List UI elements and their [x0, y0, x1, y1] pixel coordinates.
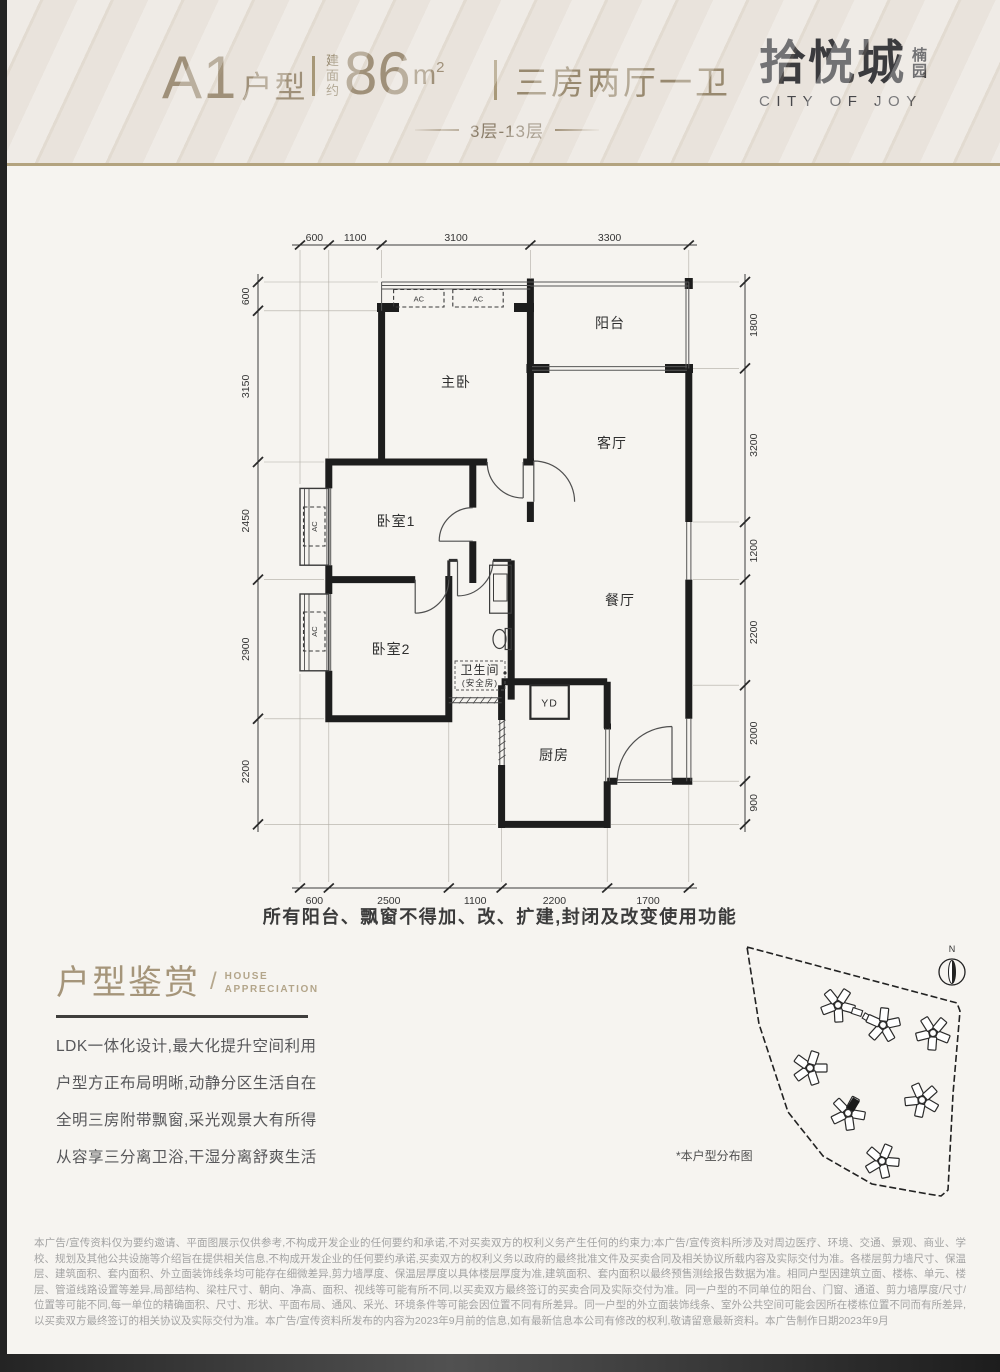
- dim-left-2450: 2450: [240, 509, 252, 533]
- area-unit-sup: 2: [436, 59, 444, 76]
- dim-top-1100: 1100: [344, 232, 367, 244]
- appreciation-divider: [56, 1015, 308, 1018]
- appreciation-en-line1: HOUSE: [225, 970, 319, 983]
- compass-north-label: N: [949, 944, 956, 954]
- dim-top-3100: 3100: [444, 232, 468, 244]
- siteplan-caption: *本户型分布图: [676, 1148, 753, 1163]
- brand-sub-name: 楠园: [911, 47, 931, 81]
- dim-left-2900: 2900: [240, 637, 252, 661]
- floors-range: 3层-13层: [470, 117, 544, 142]
- area-unit-base: m: [413, 59, 436, 90]
- dim-left-2200: 2200: [240, 760, 252, 784]
- ac-label-bay2: AC: [310, 626, 319, 637]
- room-label-yd: YD: [541, 698, 558, 710]
- area-prefix: 建面约: [326, 53, 341, 98]
- bed2-door: [415, 580, 449, 614]
- ac-label-2: AC: [473, 295, 484, 304]
- page-left-edge: [0, 0, 7, 1372]
- room-label-bed2: 卧室2: [372, 641, 411, 657]
- dim-top-600: 600: [306, 232, 324, 244]
- hatch-windows: [449, 697, 506, 765]
- brand-logo: 拾悦城 楠园 CITY OF JOY: [759, 38, 931, 110]
- header-divider-2: [494, 60, 497, 100]
- appreciation-en-line2: APPRECIATION: [225, 983, 319, 996]
- page-bottom-bar: [0, 1354, 1000, 1372]
- room-label-bath-sub: (安全房): [462, 678, 498, 688]
- dim-right-2000: 2000: [748, 721, 760, 745]
- header-divider-1: [312, 56, 315, 96]
- unit-title: A1 户型: [162, 48, 307, 108]
- dim-right-900: 900: [748, 794, 760, 812]
- appreciation-title: 户型鉴赏: [56, 964, 200, 1002]
- dim-right-1800: 1800: [748, 313, 760, 337]
- dim-top-3300: 3300: [598, 232, 622, 244]
- unit-code: A1: [162, 48, 237, 108]
- dim-left-600: 600: [240, 287, 252, 305]
- walls: [325, 279, 692, 829]
- dim-right-3200: 3200: [748, 433, 760, 457]
- plan-note: 所有阳台、飘窗不得加、改、扩建,封闭及改变使用功能: [220, 903, 780, 929]
- site-boundary: [747, 947, 960, 1196]
- area-unit: m2: [413, 59, 445, 91]
- unit-label: 户型: [241, 62, 307, 107]
- brand-name-en: CITY OF JOY: [759, 93, 931, 110]
- toilet: [493, 630, 506, 649]
- site-buildings: [794, 984, 955, 1180]
- room-label-dining: 餐厅: [605, 592, 635, 608]
- appreciation-paragraph: LDK一体化设计,最大化提升空间利用: [56, 1039, 346, 1055]
- wall-blocks: [377, 278, 693, 730]
- header: A1 户型 建面约 86 m2 三房两厅一卫 3层-13层 拾悦城 楠园 CIT…: [7, 0, 1000, 164]
- ac-label-1: AC: [414, 295, 425, 304]
- floors-dash-left: [415, 129, 459, 131]
- appreciation-title-en: HOUSE APPRECIATION: [225, 970, 319, 996]
- appreciation-section: 户型鉴赏 / HOUSE APPRECIATION LDK一体化设计,最大化提升…: [56, 964, 346, 1166]
- flyer-page: A1 户型 建面约 86 m2 三房两厅一卫 3层-13层 拾悦城 楠园 CIT…: [0, 0, 1000, 1372]
- master-door: [487, 462, 523, 498]
- site-plan: N *本户型分布图: [660, 932, 980, 1220]
- ac-label-bay1: AC: [310, 521, 319, 532]
- title-slash: /: [210, 968, 217, 996]
- bed1-door: [439, 508, 473, 542]
- appreciation-paragraph: 全明三房附带飘窗,采光观景大有所得: [56, 1113, 346, 1129]
- room-label-balcony: 阳台: [595, 315, 625, 331]
- room-label-kitchen: 厨房: [539, 747, 569, 763]
- floors-dash-right: [555, 129, 599, 131]
- entry-door: [617, 727, 672, 782]
- living-door: [534, 461, 575, 502]
- room-label-bath: 卫生间: [460, 663, 499, 677]
- area-value: 86: [344, 45, 411, 103]
- compass: N: [939, 944, 965, 985]
- brand-name: 拾悦城: [759, 38, 906, 88]
- floors-row: 3层-13层: [377, 117, 637, 142]
- room-label-living: 客厅: [597, 435, 627, 451]
- room-label-bed1: 卧室1: [377, 513, 416, 529]
- dim-right-1200: 1200: [748, 539, 760, 563]
- partition-walls: [449, 560, 511, 579]
- area-group: 建面约 86 m2: [326, 45, 444, 103]
- floor-plan: 600 1100 3100 3300 600 2500 1100 2200 17…: [220, 230, 780, 920]
- appreciation-paragraph: 从容享三分离卫浴,干湿分离舒爽生活: [56, 1150, 346, 1166]
- dim-right-2200: 2200: [748, 621, 760, 645]
- rooms-summary: 三房两厅一卫: [515, 56, 731, 104]
- disclaimer-text: 本广告/宣传资料仅为要约邀请、平面图展示仅供参考,不构成开发企业的任何要约和承诺…: [34, 1236, 966, 1330]
- appreciation-paragraph: 户型方正布局明晰,动静分区生活自在: [56, 1076, 346, 1092]
- room-label-master: 主卧: [441, 374, 471, 390]
- doors: [415, 461, 672, 781]
- dim-left-3150: 3150: [240, 375, 252, 399]
- header-gold-rule: [0, 163, 1000, 166]
